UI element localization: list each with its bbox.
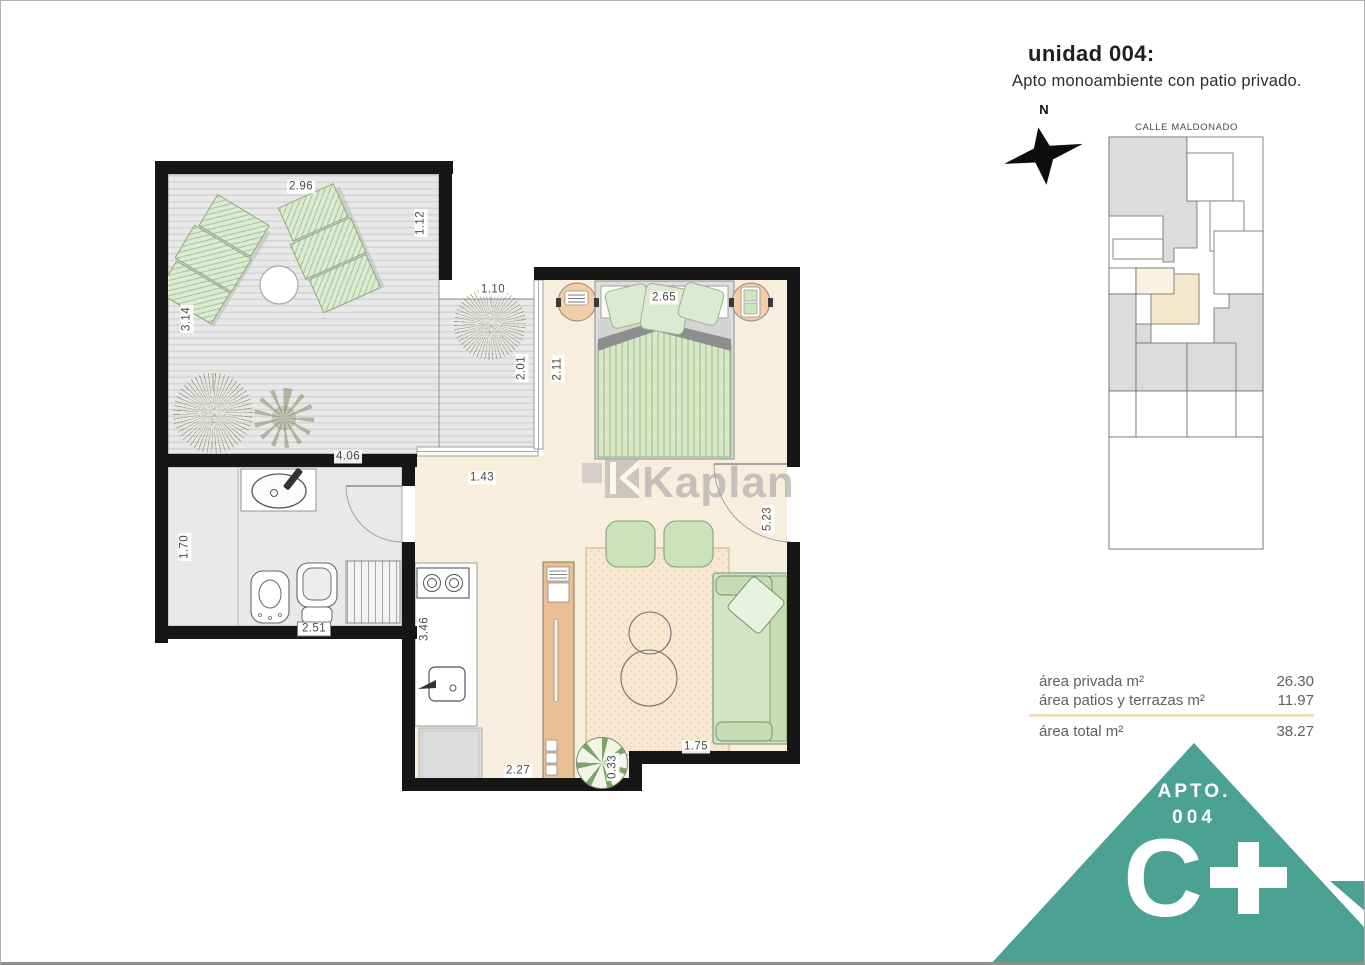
north-star-icon xyxy=(999,120,1089,191)
area-row-total: área total m² 38.27 xyxy=(1029,722,1314,741)
dim-bedroom-left-height: 2.11 xyxy=(552,355,565,382)
dim-planter-width: 0.33 xyxy=(607,753,620,781)
dim-patio-bottom-width: 4.06 xyxy=(334,451,362,464)
sofa xyxy=(713,573,789,744)
area-value: 26.30 xyxy=(1264,673,1314,690)
site-key-plan xyxy=(1109,137,1263,549)
dim-kitchen-bottom-width: 2.27 xyxy=(504,765,532,778)
area-label: área total m² xyxy=(1039,723,1123,740)
bathroom-vanity xyxy=(241,467,316,511)
dim-patio-top-width: 2.96 xyxy=(287,181,315,194)
dim-bed-width: 2.65 xyxy=(650,292,678,305)
area-value: 38.27 xyxy=(1264,723,1314,740)
watermark-brand: Kaplan xyxy=(642,458,795,508)
dim-bath-left-height: 1.70 xyxy=(179,533,192,561)
area-row-patios: área patios y terrazas m² 11.97 xyxy=(1029,691,1314,710)
page-title: unidad 004: xyxy=(1028,41,1155,67)
dim-subpatio-width: 1.10 xyxy=(479,284,507,297)
area-divider xyxy=(1029,714,1314,717)
dim-hall-width: 1.43 xyxy=(468,472,496,485)
dim-patio-left-height: 3.14 xyxy=(181,305,194,333)
patio-shrub-icon xyxy=(254,388,314,448)
dim-living-right-height: 5.23 xyxy=(762,505,775,533)
area-label: área privada m² xyxy=(1039,673,1144,690)
north-label: N xyxy=(1034,102,1054,117)
badge-unit-number: 004 xyxy=(1134,807,1254,829)
bed xyxy=(595,281,734,459)
area-label: área patios y terrazas m² xyxy=(1039,692,1205,709)
dim-living-bottom-width: 1.75 xyxy=(682,741,710,754)
area-value: 11.97 xyxy=(1264,692,1314,709)
grade-letter: C xyxy=(1123,817,1202,940)
plan-sheet: C unidad 004: Apto monoambiente con pati… xyxy=(0,0,1365,965)
refrigerator xyxy=(419,728,482,785)
window-patio xyxy=(417,447,538,456)
kitchen-counter xyxy=(415,563,477,726)
pouf xyxy=(664,521,713,567)
indoor-plant-icon xyxy=(576,737,628,789)
bidet xyxy=(251,571,289,623)
dim-kitchen-left-height: 3.46 xyxy=(419,615,432,643)
patio-plant-icon xyxy=(173,373,253,453)
badge-apto-label: APTO. xyxy=(1134,781,1254,803)
patio-table xyxy=(260,266,298,304)
dim-subpatio-height: 2.01 xyxy=(516,354,529,382)
dim-bath-bottom-width: 2.51 xyxy=(297,622,331,637)
window-bedroom xyxy=(534,280,543,449)
pouf xyxy=(606,521,655,567)
street-label: CALLE MALDONADO xyxy=(1109,122,1264,133)
toilet xyxy=(297,563,337,623)
area-row-private: área privada m² 26.30 xyxy=(1029,672,1314,691)
page-subtitle: Apto monoambiente con patio privado. xyxy=(1012,72,1302,91)
shower xyxy=(346,561,400,623)
dim-patio-right-step: 1.12 xyxy=(415,209,428,237)
area-table: área privada m² 26.30 área patios y terr… xyxy=(1029,672,1314,741)
wardrobe xyxy=(543,562,574,781)
subpatio-plant-icon xyxy=(454,288,526,360)
